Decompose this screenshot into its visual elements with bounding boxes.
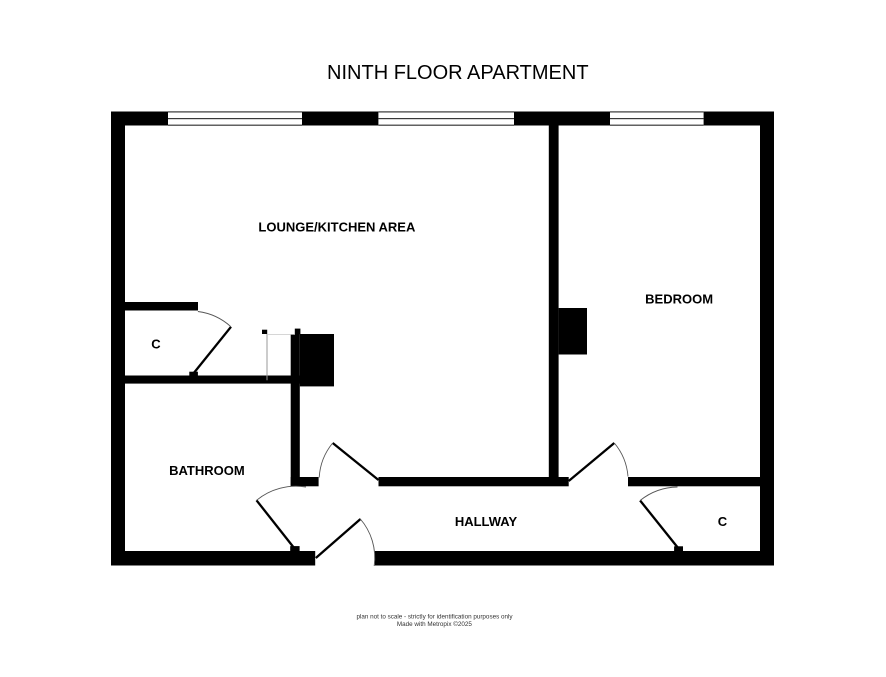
svg-text:HALLWAY: HALLWAY [455,514,518,529]
svg-text:NINTH FLOOR APARTMENT: NINTH FLOOR APARTMENT [327,62,589,84]
svg-text:plan not to scale - strictly f: plan not to scale - strictly for identif… [356,613,513,620]
svg-text:C: C [151,336,161,351]
svg-text:Made with Metropix ©2025: Made with Metropix ©2025 [397,620,472,628]
svg-text:C: C [718,514,728,529]
svg-text:BEDROOM: BEDROOM [645,291,713,306]
svg-text:BATHROOM: BATHROOM [169,463,245,478]
svg-text:LOUNGE/KITCHEN AREA: LOUNGE/KITCHEN AREA [258,220,416,235]
